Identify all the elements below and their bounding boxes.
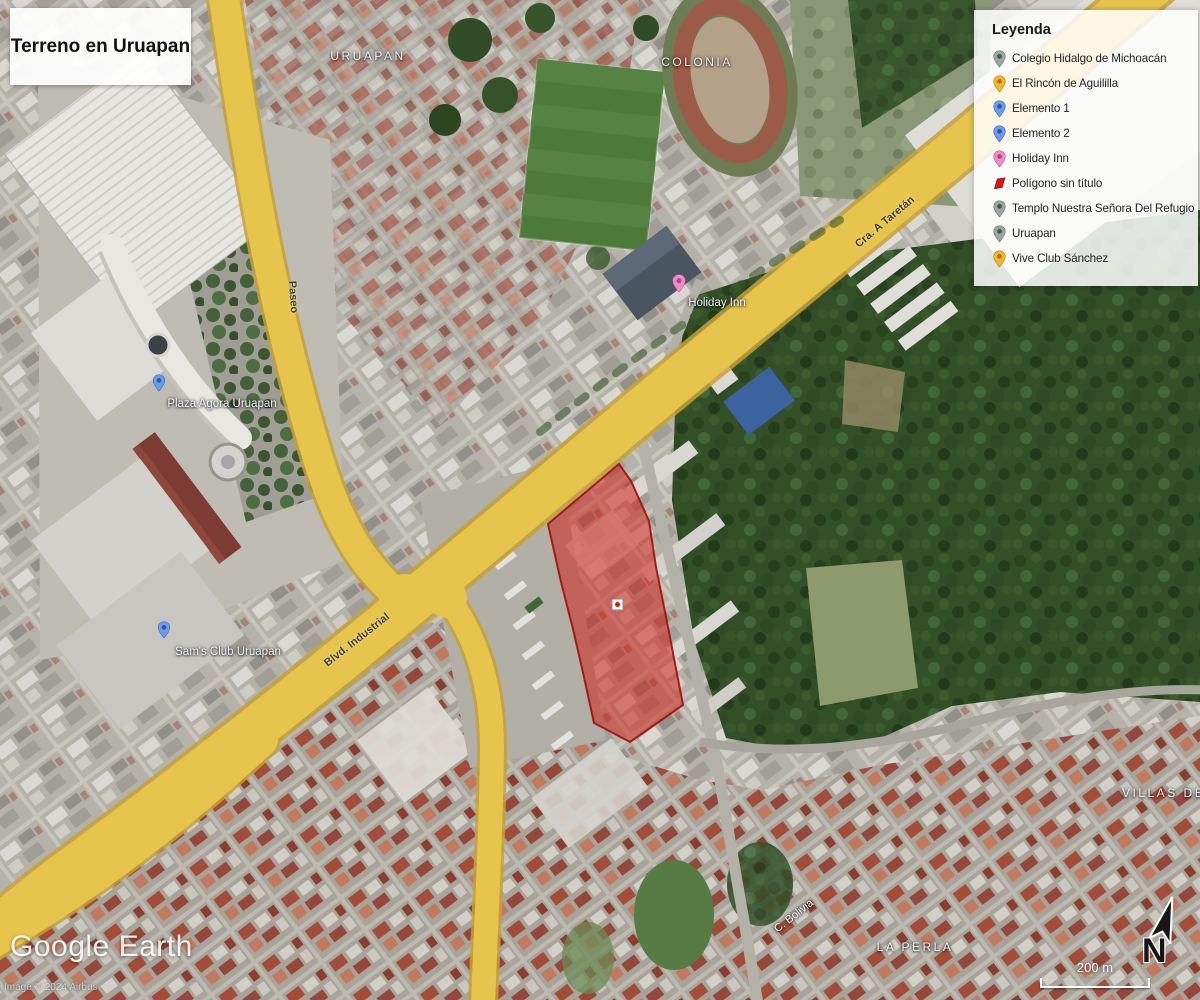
pin-icon	[986, 125, 1012, 143]
label-uruapan: URUAPAN	[330, 49, 405, 63]
sams-club-pin-icon[interactable]	[158, 621, 171, 644]
legend-item-label: El Rincón de Aguililla	[1012, 77, 1118, 90]
label-paseo: Paseo	[286, 280, 300, 313]
imagery-attribution: Image © 2024 Airbus	[4, 982, 98, 993]
legend-item-label: Elemento 2	[1012, 127, 1070, 140]
label-holiday-inn[interactable]: Holiday Inn	[688, 297, 746, 309]
legend-item-elemento-2[interactable]: Elemento 2	[974, 121, 1198, 146]
pin-icon	[986, 50, 1012, 68]
page-title: Terreno en Uruapan	[11, 36, 190, 58]
map-canvas[interactable]: URUAPAN COLONIA LA PERLA VILLAS DE Plaza…	[0, 0, 1200, 1000]
legend-item-label: Vive Club Sánchez	[1012, 252, 1108, 265]
label-sams-club[interactable]: Sam's Club Uruapan	[175, 646, 281, 658]
scale-label: 200 m	[1040, 960, 1150, 975]
google-earth-watermark: Google Earth	[10, 930, 193, 964]
legend-item-label: Elemento 1	[1012, 102, 1070, 115]
soccer-field	[519, 59, 665, 251]
pin-icon	[986, 225, 1012, 243]
plaza-agora-pin-icon[interactable]	[153, 374, 166, 397]
legend-item-templo[interactable]: Templo Nuestra Señora Del Refugio	[974, 196, 1198, 221]
label-la-perla: LA PERLA	[877, 940, 954, 954]
map-title-box: Terreno en Uruapan	[10, 8, 191, 85]
legend-item-uruapan[interactable]: Uruapan	[974, 221, 1198, 246]
label-villas-de: VILLAS DE	[1122, 786, 1200, 800]
north-letter: N	[1142, 932, 1167, 971]
scale-line	[1040, 978, 1150, 988]
legend-title: Leyenda	[992, 22, 1198, 38]
legend-item-label: Templo Nuestra Señora Del Refugio	[1012, 202, 1194, 215]
pin-icon	[986, 75, 1012, 93]
legend-item-poligono[interactable]: Polígono sin título	[974, 171, 1198, 196]
pin-icon	[986, 100, 1012, 118]
legend-item-label: Holiday Inn	[1012, 152, 1069, 165]
legend-item-label: Polígono sin título	[1012, 177, 1102, 190]
legend-item-label: Uruapan	[1012, 227, 1056, 240]
legend-item-el-rincon[interactable]: El Rincón de Aguililla	[974, 71, 1198, 96]
legend-item-holiday-inn[interactable]: Holiday Inn	[974, 146, 1198, 171]
legend-item-label: Colegio Hidalgo de Michoacán	[1012, 52, 1166, 65]
label-plaza-agora[interactable]: Plaza Agora Uruapan	[167, 398, 276, 410]
pin-icon	[986, 200, 1012, 218]
pin-icon	[986, 150, 1012, 168]
label-colonia: COLONIA	[661, 55, 733, 69]
legend-item-vive-club[interactable]: Vive Club Sánchez	[974, 246, 1198, 271]
scale-bar: 200 m	[1040, 960, 1150, 988]
holiday-inn-pin-icon[interactable]	[672, 274, 686, 298]
north-arrow: N	[1136, 892, 1196, 984]
polygon-icon	[986, 176, 1012, 191]
legend-panel: Leyenda Colegio Hidalgo de Michoacán El …	[974, 10, 1198, 286]
legend-item-colegio-hidalgo[interactable]: Colegio Hidalgo de Michoacán	[974, 46, 1198, 71]
legend-item-elemento-1[interactable]: Elemento 1	[974, 96, 1198, 121]
pin-icon	[986, 250, 1012, 268]
